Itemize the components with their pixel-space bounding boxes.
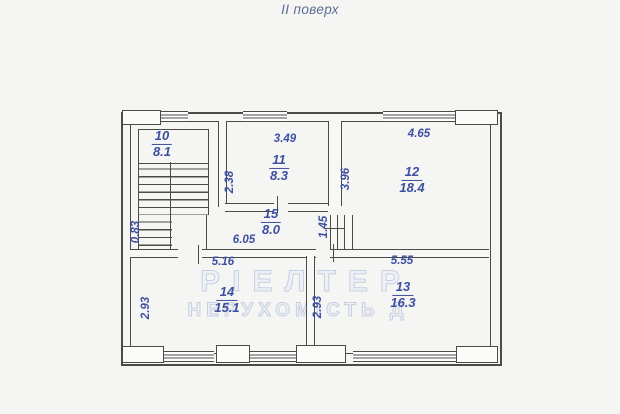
floor-title: II поверх <box>0 2 620 17</box>
wall-room11-left <box>218 121 227 207</box>
stairs-right-wall-line <box>206 215 207 249</box>
corner-block-top-left <box>122 110 161 125</box>
room-14-area: 15.1 <box>214 301 239 316</box>
room-12-area: 18.4 <box>399 181 424 196</box>
dim-room14-width: 5.16 <box>212 256 234 268</box>
wall-hall-end-right <box>344 215 353 252</box>
stair-landing-box <box>138 129 209 164</box>
room-13-area: 16.3 <box>390 296 415 311</box>
room-11-label: 11 8.3 <box>269 153 289 183</box>
room-15-number: 15 <box>261 207 281 223</box>
wall-room11-room12 <box>328 121 342 206</box>
room-13-number: 13 <box>393 280 413 296</box>
dim-room12-depth: 3.96 <box>340 168 352 190</box>
dim-hall-width: 6.05 <box>233 234 255 246</box>
corner-block-bottom-right <box>456 346 498 363</box>
room-10-number: 10 <box>152 129 172 145</box>
room-12-label: 12 18.4 <box>399 165 424 195</box>
dim-hall-end: 1.45 <box>318 216 330 238</box>
stairs-upper-flight <box>138 162 209 215</box>
room-12-number: 12 <box>402 165 422 181</box>
dim-room13-width: 5.55 <box>391 255 413 267</box>
dim-room11-depth: 2.38 <box>224 171 236 193</box>
dim-stair-width: 0.83 <box>130 221 142 243</box>
wall-pier-2 <box>296 345 346 363</box>
window-bottom-2 <box>247 351 297 362</box>
dim-room12-width: 4.65 <box>408 128 430 140</box>
corner-block-top-right <box>455 110 498 125</box>
tick-room13-door <box>333 244 334 262</box>
window-top-1 <box>159 111 188 122</box>
window-bottom-3 <box>353 351 456 362</box>
room-10-label: 10 8.1 <box>152 129 172 159</box>
room-14-label: 14 15.1 <box>214 285 239 315</box>
window-top-3 <box>383 111 455 122</box>
floor-plan-page: II поверх РІЕЛТЕР НЕРУХОМІСТЬ Д 10 8.1 1 <box>0 0 620 414</box>
room-13-label: 13 16.3 <box>390 280 415 310</box>
dim-room11-width: 3.49 <box>274 133 296 145</box>
dim-room13-depth: 2.93 <box>312 296 324 318</box>
stairs-lower-flight <box>138 215 172 249</box>
room-11-number: 11 <box>269 153 289 169</box>
wall-room11-bottom-right <box>288 203 328 212</box>
window-bottom-1 <box>162 351 214 362</box>
dim-room14-depth: 2.93 <box>140 297 152 319</box>
room-15-area: 8.0 <box>261 223 281 238</box>
window-top-2 <box>243 111 287 122</box>
room-11-area: 8.3 <box>269 169 289 184</box>
tick-hall-room14-door <box>198 245 199 264</box>
room-15-label: 15 8.0 <box>261 207 281 237</box>
wall-pier-1 <box>216 345 250 363</box>
stairs-divider-line <box>170 162 171 249</box>
room-10-area: 8.1 <box>152 145 172 160</box>
room-14-number: 14 <box>217 285 237 301</box>
corner-block-bottom-left <box>122 346 164 363</box>
wall-hall-bottom-left <box>130 249 178 258</box>
